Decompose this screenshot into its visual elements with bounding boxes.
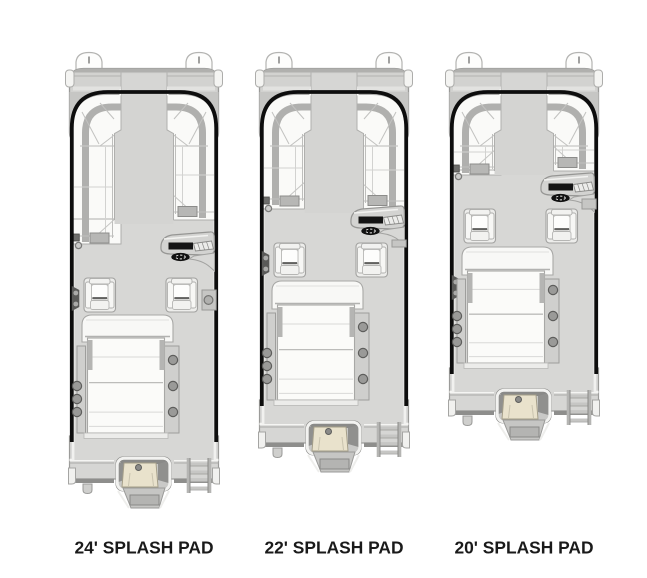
svg-text:20' SPLASH PAD: 20' SPLASH PAD: [454, 538, 593, 558]
svg-text:24' SPLASH PAD: 24' SPLASH PAD: [74, 538, 213, 558]
svg-text:22' SPLASH PAD: 22' SPLASH PAD: [264, 538, 403, 558]
